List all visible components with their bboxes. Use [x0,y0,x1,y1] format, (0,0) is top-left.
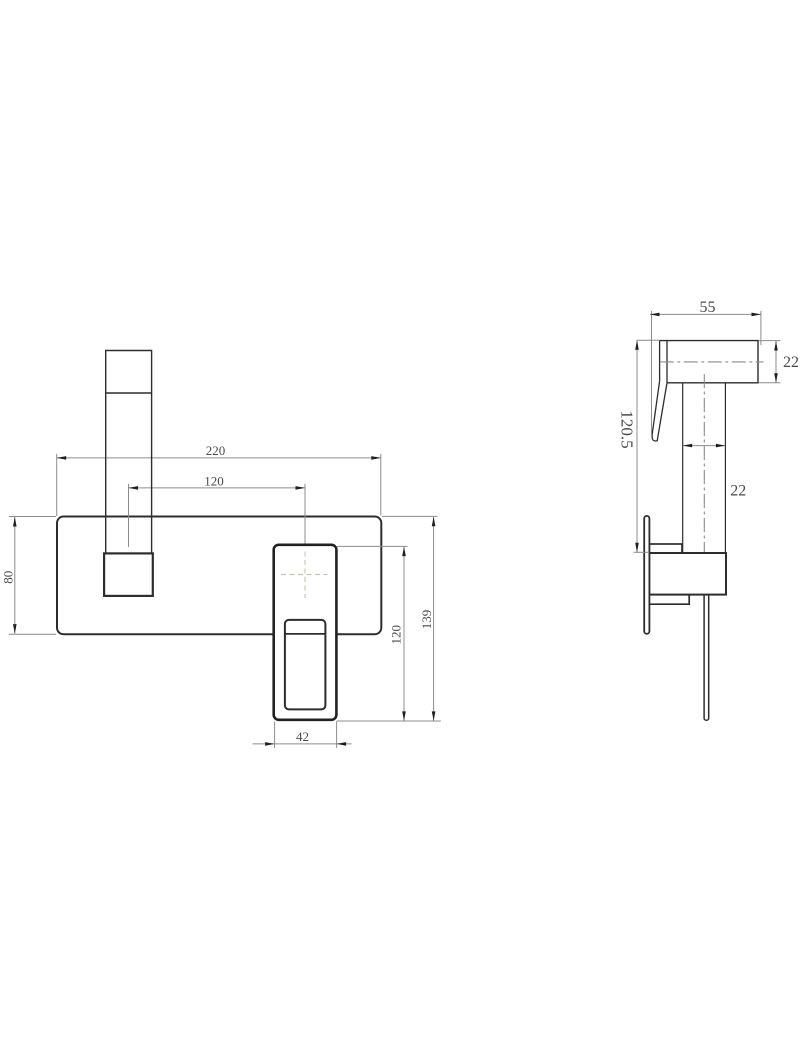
svg-text:22: 22 [730,483,746,500]
svg-text:120.5: 120.5 [618,410,637,448]
svg-text:80: 80 [1,571,16,584]
svg-text:42: 42 [296,729,309,744]
svg-text:139: 139 [419,610,434,630]
svg-text:220: 220 [206,443,226,458]
svg-text:120: 120 [204,474,224,489]
svg-text:22: 22 [783,354,799,371]
svg-text:55: 55 [700,299,716,316]
svg-text:120: 120 [389,625,404,645]
